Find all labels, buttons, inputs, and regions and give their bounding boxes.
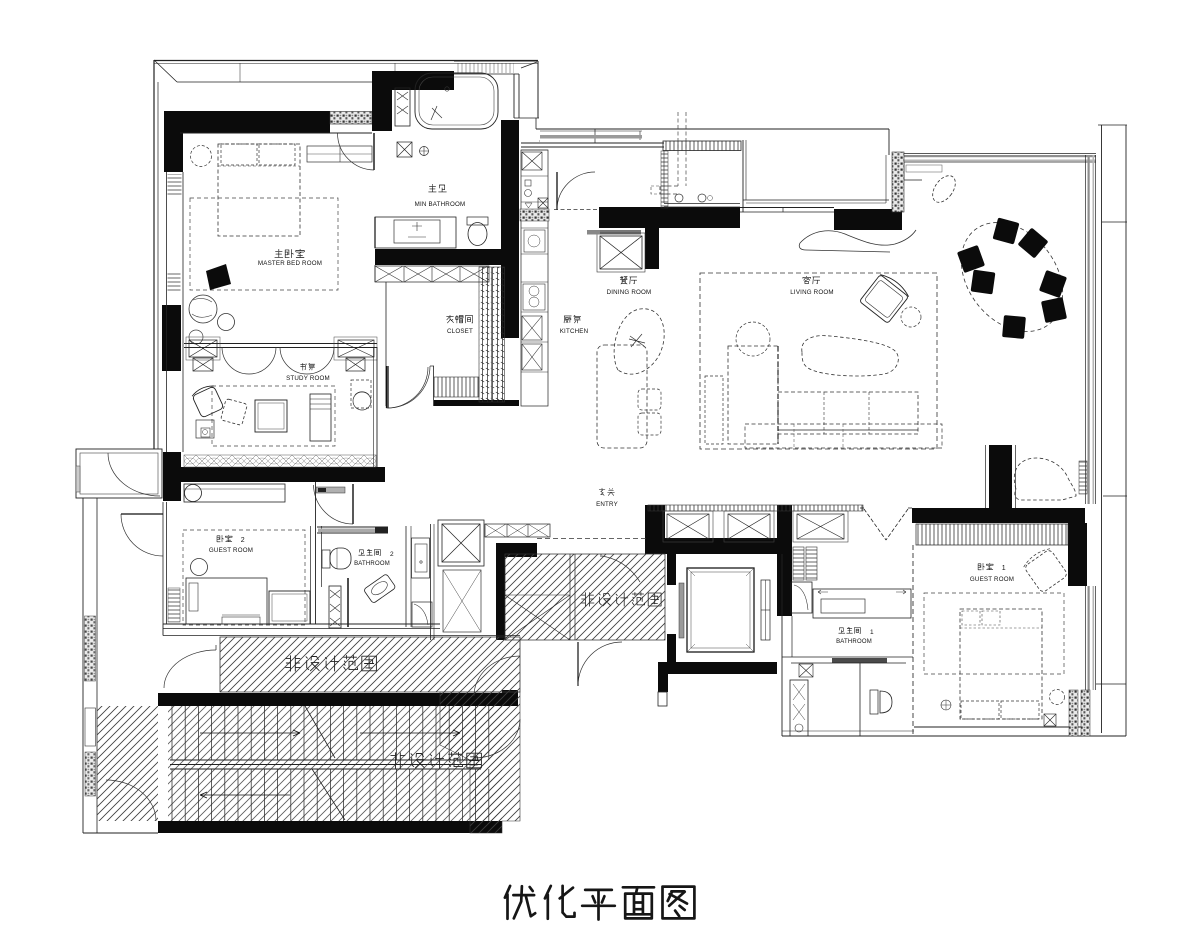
svg-text:MIN BATHROOM: MIN BATHROOM — [415, 201, 466, 208]
svg-text:1: 1 — [870, 629, 874, 636]
svg-text:2: 2 — [241, 537, 245, 544]
svg-text:CLOSET: CLOSET — [447, 328, 473, 335]
svg-text:GUEST ROOM: GUEST ROOM — [970, 576, 1014, 583]
svg-text:DINING ROOM: DINING ROOM — [607, 289, 652, 296]
svg-text:BATHROOM: BATHROOM — [354, 561, 390, 567]
svg-text:STUDY ROOM: STUDY ROOM — [286, 375, 330, 382]
svg-text:1: 1 — [1002, 565, 1006, 572]
svg-text:LIVING ROOM: LIVING ROOM — [790, 289, 833, 296]
svg-text:KITCHEN: KITCHEN — [560, 328, 589, 335]
svg-text:GUEST ROOM: GUEST ROOM — [209, 547, 253, 554]
svg-text:2: 2 — [390, 551, 394, 558]
svg-text:ENTRY: ENTRY — [596, 501, 618, 508]
svg-text:MASTER BED ROOM: MASTER BED ROOM — [258, 260, 322, 267]
svg-text:BATHROOM: BATHROOM — [836, 639, 872, 645]
